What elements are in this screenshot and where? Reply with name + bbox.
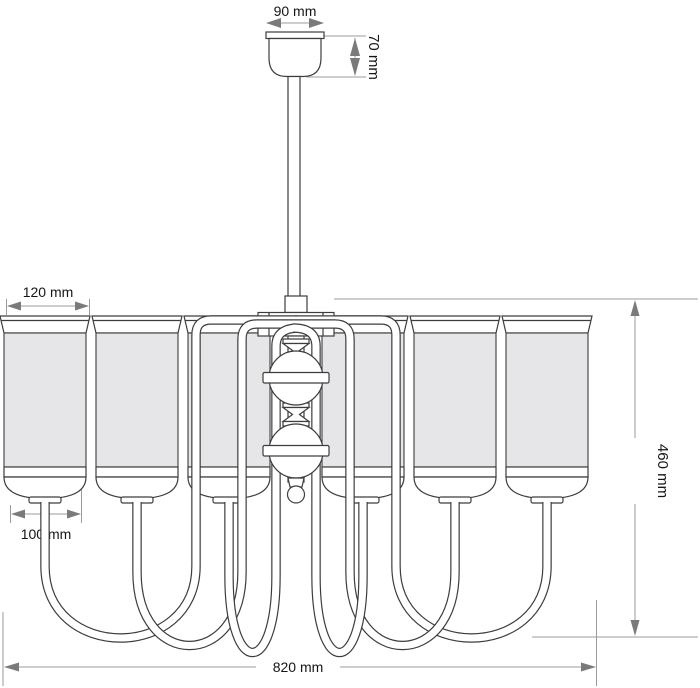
- canopy-width-label: 90 mm: [274, 3, 317, 19]
- ceiling-canopy: [266, 32, 324, 77]
- fixture-height-label: 460 mm: [654, 444, 671, 498]
- arrow-left-icon: [4, 663, 19, 672]
- arrow-right-icon: [75, 302, 89, 311]
- shade-top-diameter-label: 120 mm: [23, 284, 74, 300]
- drawing-canvas: 90 mm 70 mm 120 mm 100 mm 460 mm: [0, 0, 700, 688]
- dim-shade-top-diameter: 120 mm: [7, 284, 90, 315]
- arrow-left-icon: [11, 510, 25, 519]
- canopy-height-label: 70 mm: [365, 34, 382, 80]
- chandelier-technical-drawing: 90 mm 70 mm 120 mm 100 mm 460 mm: [0, 0, 700, 688]
- diabolo-spacer-2: [283, 403, 309, 426]
- arrow-right-icon: [309, 18, 324, 28]
- arrow-up-icon: [631, 300, 640, 316]
- dim-canopy-width: 90 mm: [266, 3, 324, 28]
- shade-1: [0, 316, 90, 503]
- dim-total-width: 820 mm: [3, 600, 597, 686]
- arrow-left-icon: [266, 18, 281, 28]
- finial-ball: [288, 486, 305, 503]
- sphere-1-band: [263, 373, 329, 384]
- rod-connector-block: [285, 296, 307, 313]
- sphere-2-band: [263, 446, 329, 457]
- total-width-label: 820 mm: [273, 659, 324, 675]
- shade-6: [502, 316, 592, 503]
- shade-2: [92, 316, 182, 503]
- shade-5: [410, 316, 500, 503]
- arrow-down-icon: [631, 620, 640, 636]
- arrow-right-icon: [581, 663, 596, 672]
- arrow-left-icon: [7, 302, 21, 311]
- arrow-up-icon: [350, 38, 360, 56]
- arrow-down-icon: [350, 58, 360, 76]
- arrow-right-icon: [67, 510, 81, 519]
- suspension-rod: [288, 77, 300, 297]
